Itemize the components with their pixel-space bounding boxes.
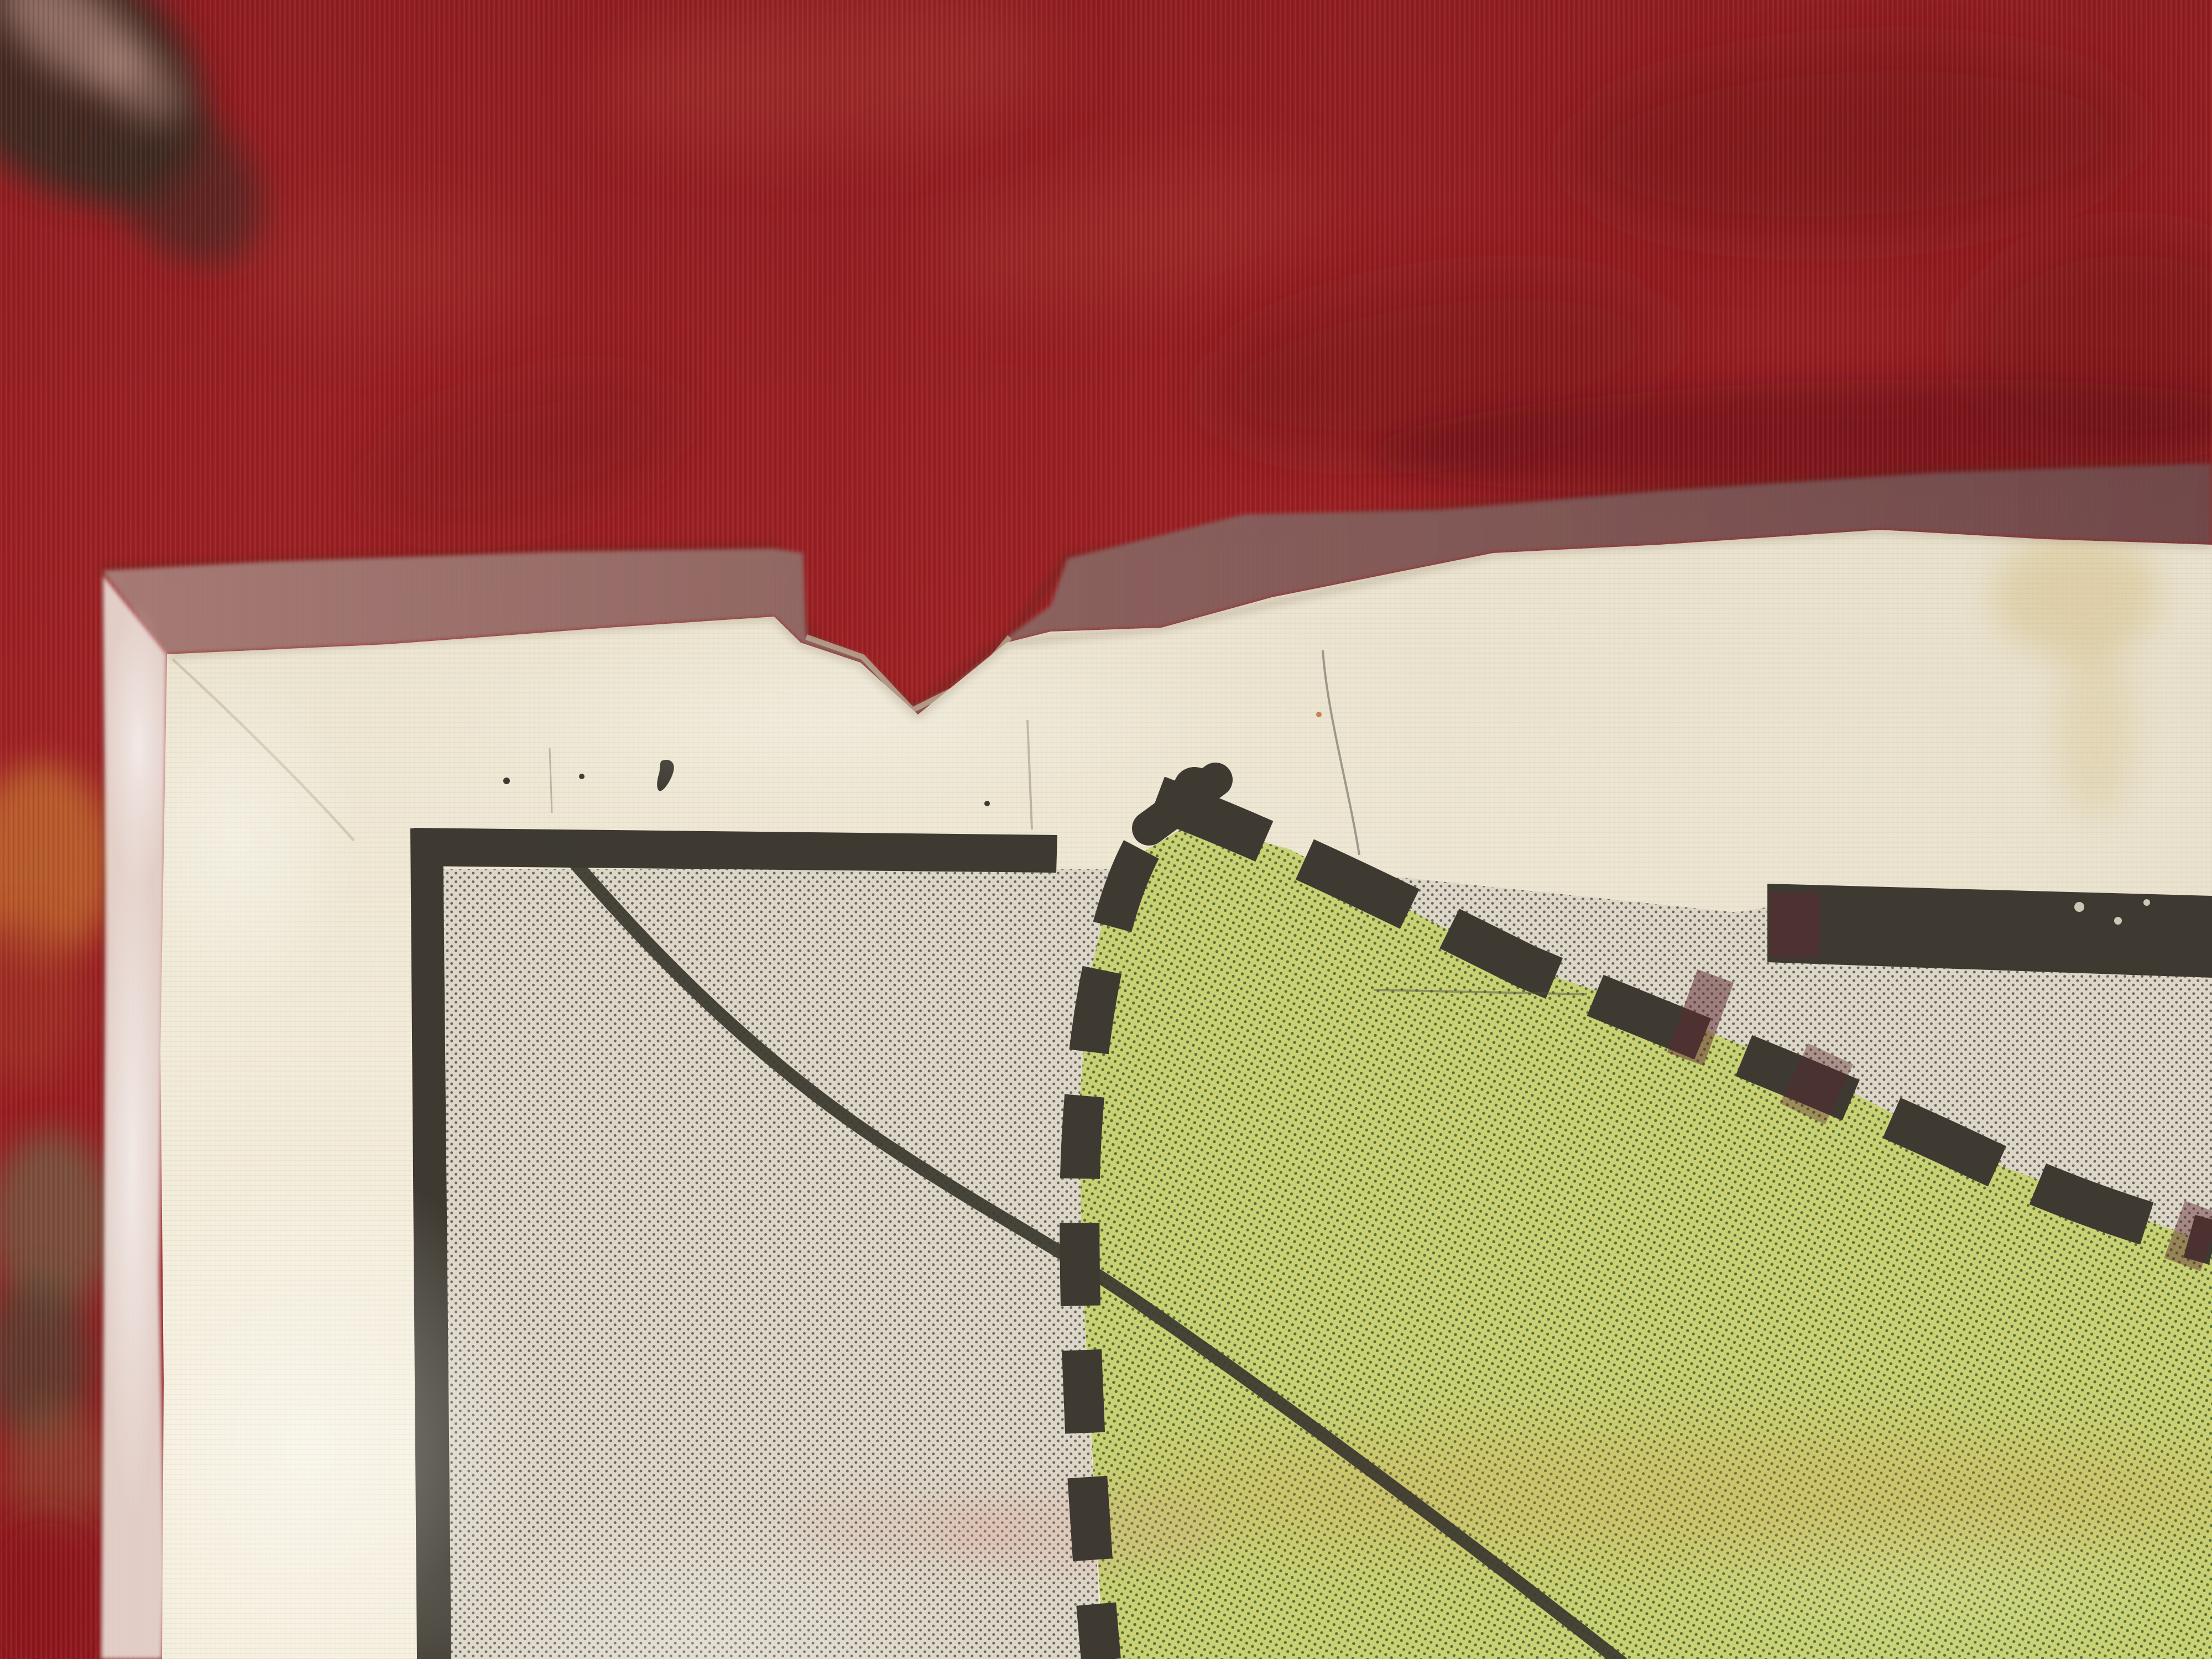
ink-speck bbox=[807, 857, 815, 864]
white-fleck-on-bar bbox=[2074, 902, 2084, 912]
ink-speck bbox=[984, 801, 990, 806]
map-paper bbox=[0, 498, 2212, 1659]
white-fleck-on-bar bbox=[2114, 917, 2122, 925]
laminate-shine bbox=[105, 603, 171, 890]
sheen-highlight bbox=[442, 630, 1217, 807]
printed-map-content bbox=[0, 498, 2212, 1659]
photo-canvas bbox=[0, 0, 2212, 1659]
tan-stain bbox=[1994, 531, 2159, 658]
tan-stain bbox=[2057, 641, 2135, 818]
dashed-boundary-vertex-blob bbox=[1173, 767, 1215, 809]
frame-border-right-thick bbox=[1767, 884, 2212, 978]
photo-laminated-map-on-carpet bbox=[0, 0, 2212, 1659]
white-fleck-on-bar bbox=[2143, 899, 2150, 906]
frame-border-top bbox=[412, 828, 1057, 873]
orange-speck bbox=[1316, 712, 1322, 717]
ink-speck bbox=[503, 778, 510, 784]
laminate-shine bbox=[102, 802, 163, 1521]
maroon-tint bbox=[1770, 893, 1819, 957]
